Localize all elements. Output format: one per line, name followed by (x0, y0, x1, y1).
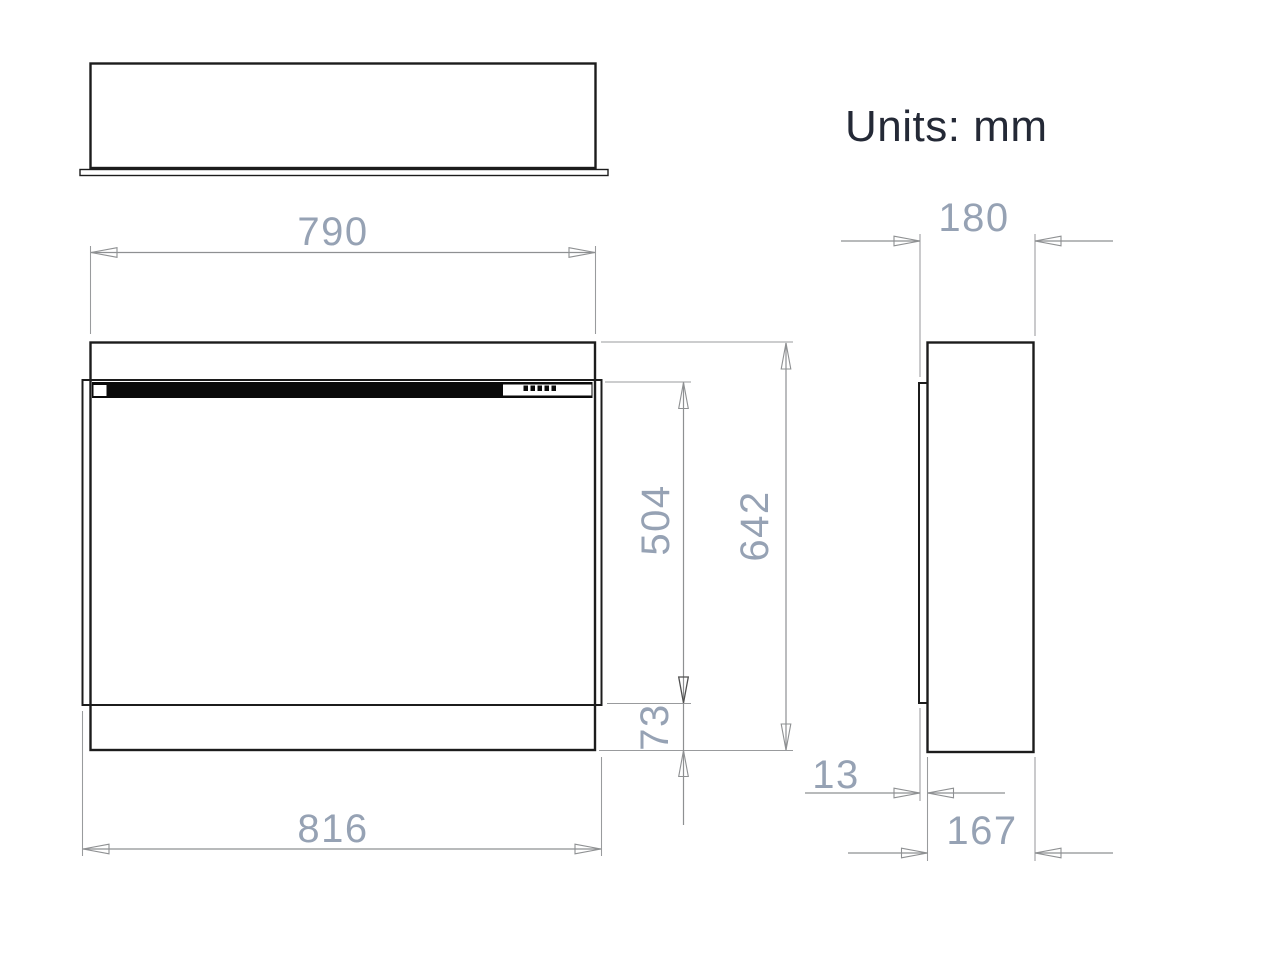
dimension-overall-height: 642 (599, 342, 793, 751)
dimension-label-167: 167 (946, 809, 1017, 853)
dimension-front-protrusion: 13 (805, 708, 1005, 801)
dimension-base-height: 73 (633, 703, 688, 825)
dimension-label-13: 13 (812, 753, 860, 797)
side-view-body-outline (928, 343, 1034, 753)
top-view (80, 64, 608, 176)
control-button-icon (545, 386, 550, 392)
dimension-drawing-page: 790 816 642 504 (0, 0, 1272, 962)
dimension-front-width: 790 (91, 210, 596, 334)
dimension-overall-depth: 180 (841, 196, 1113, 377)
dimension-label-790: 790 (297, 210, 368, 254)
dimension-opening-height: 504 (605, 382, 691, 704)
top-view-front-lip (80, 170, 608, 176)
dimension-label-642: 642 (733, 490, 777, 561)
front-view (83, 343, 602, 751)
control-button-icon (524, 386, 529, 392)
front-view-glass-outline (91, 343, 596, 751)
side-view-front-lip (919, 383, 928, 703)
side-view (919, 343, 1034, 753)
flame-strip-left-vent (94, 385, 107, 396)
top-view-body-outline (91, 64, 596, 169)
dimension-label-180: 180 (938, 196, 1009, 240)
dimension-body-depth: 167 (848, 757, 1113, 861)
dimension-label-816: 816 (297, 807, 368, 851)
units-note: Units: mm (845, 102, 1048, 151)
dimension-overall-width: 816 (83, 711, 602, 856)
control-button-icon (552, 386, 557, 392)
dimension-label-73: 73 (633, 703, 677, 751)
control-button-icon (538, 386, 543, 392)
dimension-label-504: 504 (634, 484, 678, 555)
front-view-bezel-outline (83, 380, 602, 705)
technical-drawing: 790 816 642 504 (0, 0, 1272, 962)
control-button-icon (531, 386, 536, 392)
